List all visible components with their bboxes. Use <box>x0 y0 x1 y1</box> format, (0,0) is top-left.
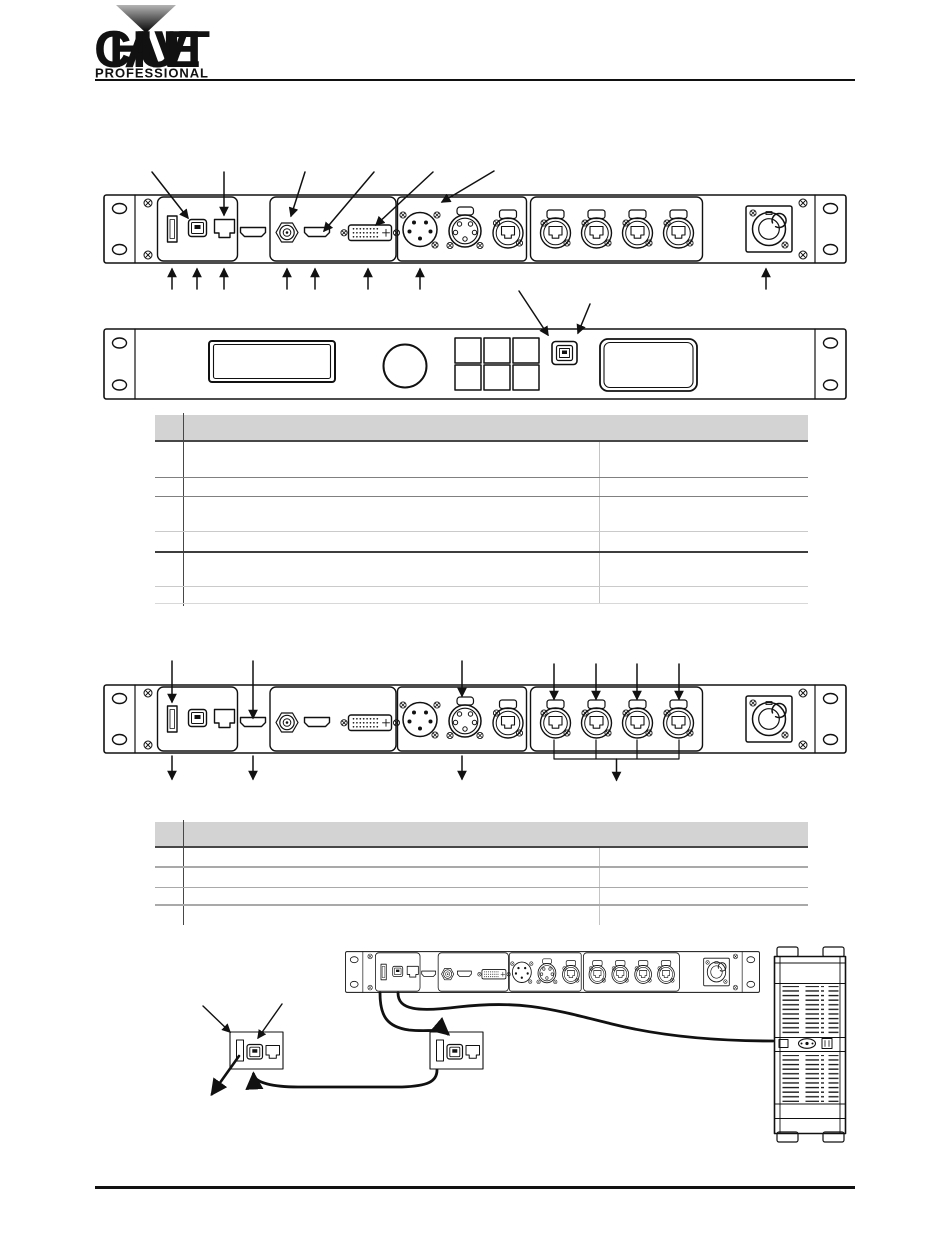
computer-tower <box>775 947 846 1142</box>
usb-cable-link-2 <box>254 1070 438 1087</box>
vent-grille <box>783 986 802 1035</box>
callout-arrows-bottom <box>172 269 766 289</box>
rear-panel-signal-diagram <box>104 661 846 780</box>
header-rule <box>95 79 855 82</box>
rear-panel-legend-table <box>155 415 808 606</box>
footer-rule <box>95 1186 855 1189</box>
usb-linking-diagram <box>203 947 846 1142</box>
usb-cable-link-1 <box>380 993 448 1034</box>
column-divider <box>183 820 184 925</box>
row-divider <box>155 904 808 906</box>
row-divider <box>155 477 808 478</box>
column-divider <box>599 442 600 604</box>
chauvet-logo: CHAUVET PROFESSIONAL <box>94 5 210 81</box>
row-divider <box>155 531 808 532</box>
row-divider <box>155 496 808 497</box>
rear-panel-diagram <box>104 171 846 289</box>
signal-legend-table <box>155 822 808 925</box>
page-artwork: CHAUVET PROFESSIONAL <box>0 0 950 1241</box>
usb-link-box-1 <box>230 1032 283 1069</box>
row-divider <box>155 551 808 553</box>
table-header-row <box>155 822 808 848</box>
rear-panel-mini <box>346 952 760 993</box>
row-divider <box>155 866 808 868</box>
row-divider <box>155 603 808 604</box>
usb-link-box-2 <box>430 1032 483 1069</box>
front-panel-diagram <box>104 291 846 399</box>
to-next-device-arrow <box>212 1056 239 1094</box>
row-divider <box>155 586 808 587</box>
usb-cables <box>254 993 774 1087</box>
row-divider <box>155 887 808 889</box>
column-divider <box>183 413 184 606</box>
chassis <box>104 329 846 399</box>
table-header-row <box>155 415 808 442</box>
manual-page: CHAUVET PROFESSIONAL <box>0 0 950 1241</box>
